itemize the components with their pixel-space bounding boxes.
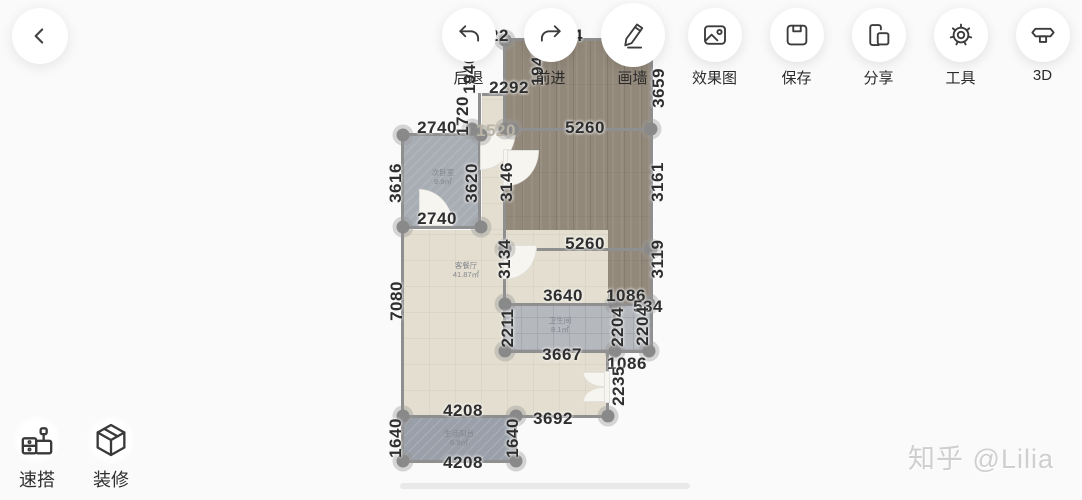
3d-icon [1016, 8, 1070, 62]
room-label: 卫生间8.1㎡ [549, 316, 572, 334]
quick-build-label: 速搭 [19, 466, 55, 492]
redo-button[interactable]: 前进 [523, 8, 578, 88]
vertex-handle[interactable] [475, 221, 488, 234]
toolbar: 后退前进画墙效果图保存分享工具3D [441, 8, 1070, 88]
3d-button[interactable]: 3D [1015, 8, 1070, 88]
dimension-label[interactable]: 1520 [476, 121, 516, 141]
vertex-handle[interactable] [602, 410, 615, 423]
quick-build-icon [13, 416, 61, 464]
dimension-label[interactable]: 3692 [533, 409, 573, 429]
room-name: 生活阳台 [444, 429, 474, 438]
room-name: 次卧室 [432, 168, 455, 177]
decorate-icon [87, 416, 135, 464]
room-label: 次卧室9.9㎡ [432, 168, 455, 186]
draw-wall-label: 画墙 [617, 67, 647, 88]
tools-icon [934, 8, 988, 62]
dimension-label[interactable]: 1640 [503, 418, 523, 458]
share-icon [852, 8, 906, 62]
dimension-label[interactable]: 2204 [633, 306, 653, 346]
dimension-label[interactable]: 3161 [648, 162, 668, 202]
dimension-label[interactable]: 7080 [387, 281, 407, 321]
dimension-label[interactable]: 2235 [609, 366, 629, 406]
render-button[interactable]: 效果图 [687, 8, 742, 88]
room-name: 客餐厅 [453, 261, 479, 270]
dimension-label[interactable]: 2211 [498, 309, 518, 348]
vertex-handle[interactable] [645, 123, 658, 136]
dimension-label[interactable]: 1640 [386, 418, 406, 458]
undo-icon [442, 8, 496, 62]
render-icon [688, 8, 742, 62]
share-button[interactable]: 分享 [851, 8, 906, 88]
dimension-label[interactable]: 5260 [565, 118, 605, 138]
decorate-button[interactable]: 装修 [84, 416, 138, 492]
save-icon [770, 8, 824, 62]
bottom-panel-divider [400, 483, 690, 489]
room-area: 8.1㎡ [549, 325, 572, 334]
dimension-label[interactable]: 2740 [417, 209, 457, 229]
dimension-label[interactable]: 2204 [608, 307, 628, 347]
dimension-label[interactable]: 3667 [542, 345, 582, 365]
render-label: 效果图 [692, 67, 737, 88]
redo-icon [524, 8, 578, 62]
dimension-label[interactable]: 3134 [495, 239, 515, 279]
room-label: 生活阳台6.9㎡ [444, 429, 474, 447]
dimension-label[interactable]: 4208 [443, 453, 483, 473]
dimension-label[interactable]: 3640 [543, 286, 583, 306]
undo-label: 后退 [453, 67, 483, 88]
back-button[interactable] [12, 8, 68, 64]
vertex-handle[interactable] [397, 129, 410, 142]
dimension-label[interactable]: 3146 [497, 162, 517, 202]
dimension-label[interactable]: 2740 [417, 118, 457, 138]
redo-label: 前进 [535, 67, 565, 88]
dimension-label[interactable]: 5260 [565, 234, 605, 254]
3d-label: 3D [1033, 67, 1052, 84]
decorate-label: 装修 [93, 466, 129, 492]
dimension-label[interactable]: 3119 [648, 240, 668, 279]
room-bathroom[interactable] [505, 305, 651, 350]
dimension-label[interactable]: 4208 [443, 401, 483, 421]
save-button[interactable]: 保存 [769, 8, 824, 88]
tools-button[interactable]: 工具 [933, 8, 988, 88]
share-label: 分享 [863, 67, 893, 88]
draw-wall-button[interactable]: 画墙 [605, 8, 660, 88]
vertex-handle[interactable] [397, 221, 410, 234]
draw-wall-icon [601, 3, 665, 67]
room-area: 9.9㎡ [432, 177, 455, 186]
quick-build-button[interactable]: 速搭 [10, 416, 64, 492]
dimension-label[interactable]: 3620 [462, 163, 482, 203]
app-stage: 2241940194022921720365927401520526036163… [0, 0, 1082, 500]
chevron-left-icon [27, 23, 53, 49]
dimension-label[interactable]: 3616 [386, 163, 406, 203]
room-area: 41.87㎡ [453, 270, 479, 279]
undo-button[interactable]: 后退 [441, 8, 496, 88]
tools-label: 工具 [945, 67, 975, 88]
room-label: 客餐厅41.87㎡ [453, 261, 479, 279]
room-area: 6.9㎡ [444, 438, 474, 447]
bottom-dock: 速搭装修 [10, 416, 138, 492]
save-label: 保存 [781, 67, 811, 88]
watermark: 知乎 @Lilia [908, 437, 1054, 476]
room-name: 卫生间 [549, 316, 572, 325]
